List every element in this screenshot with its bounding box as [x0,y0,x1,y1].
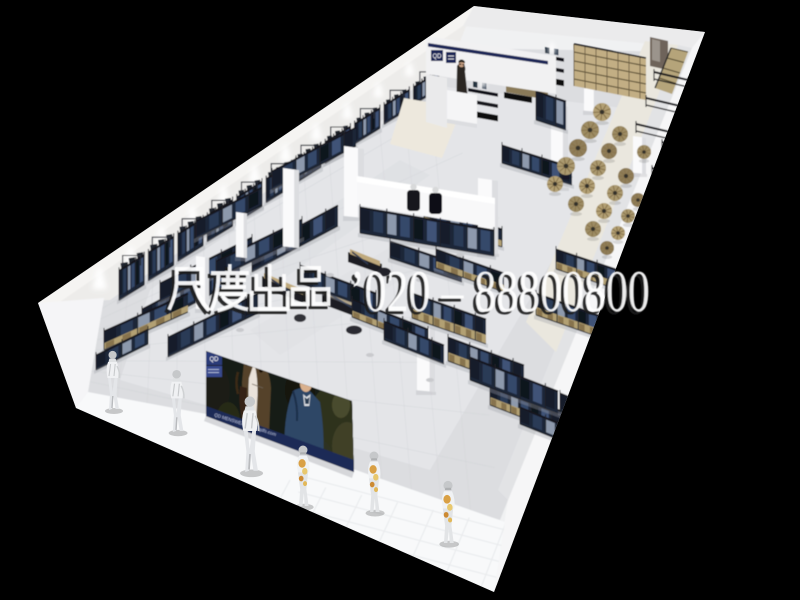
svg-text:’020 – 88800800: ’020 – 88800800 [350,258,650,324]
svg-text:QD: QD [210,357,220,363]
svg-text:QD: QD [433,54,443,60]
